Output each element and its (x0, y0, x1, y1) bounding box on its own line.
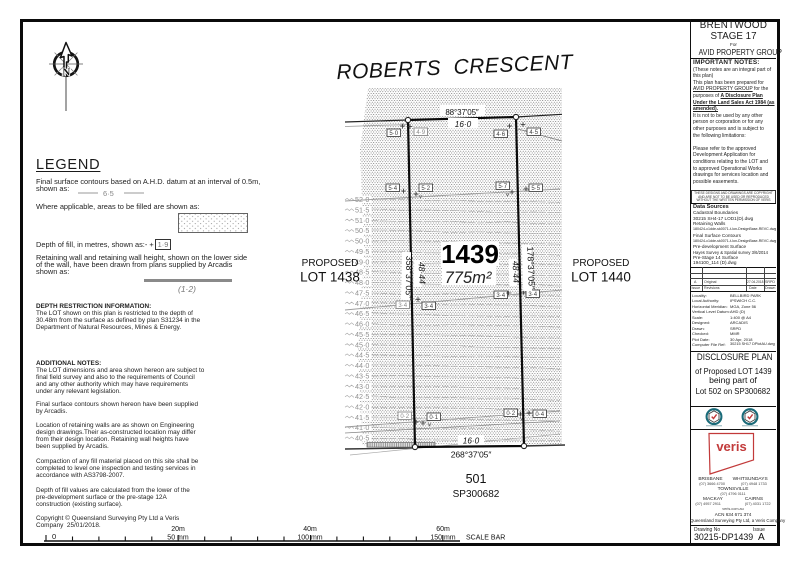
svg-text:47·5: 47·5 (355, 288, 369, 297)
svg-text:60m: 60m (436, 526, 450, 533)
svg-text:268°37'05″: 268°37'05″ (451, 450, 492, 460)
svg-text:SP300682: SP300682 (453, 489, 500, 500)
svg-text:5·2: 5·2 (421, 186, 430, 192)
svg-text:42·0: 42·0 (355, 403, 369, 412)
svg-text:50·0: 50·0 (355, 237, 369, 246)
svg-text:45·0: 45·0 (355, 340, 369, 349)
svg-text:46·5: 46·5 (355, 309, 369, 318)
svg-text:50·5: 50·5 (355, 226, 369, 235)
svg-text:49·5: 49·5 (355, 247, 369, 256)
svg-text:46·0: 46·0 (355, 320, 369, 329)
svg-text:41·5: 41·5 (355, 413, 369, 422)
svg-text:44·5: 44·5 (355, 351, 369, 360)
svg-text:178°37'05″: 178°37'05″ (525, 246, 536, 289)
svg-text:0·4: 0·4 (535, 412, 544, 418)
svg-text:51·0: 51·0 (355, 216, 369, 225)
svg-text:SCALE BAR: SCALE BAR (466, 535, 505, 542)
svg-text:0·2: 0·2 (506, 411, 515, 417)
svg-text:775m²: 775m² (445, 269, 492, 287)
svg-text:1439: 1439 (441, 239, 499, 269)
svg-text:88°37'05″: 88°37'05″ (445, 108, 479, 117)
svg-text:50 mm: 50 mm (167, 535, 189, 542)
svg-text:16·0: 16·0 (455, 120, 472, 129)
svg-text:4·6: 4·6 (496, 132, 505, 138)
svg-text:5·4: 5·4 (388, 186, 397, 192)
svg-text:48·44: 48·44 (511, 261, 522, 284)
svg-text:150 mm: 150 mm (430, 535, 455, 542)
svg-text:4·9: 4·9 (416, 130, 425, 136)
svg-text:100 mm: 100 mm (297, 535, 322, 542)
svg-text:501: 501 (466, 472, 487, 486)
svg-text:3·4: 3·4 (496, 293, 505, 299)
svg-text:44·0: 44·0 (355, 361, 369, 370)
svg-text:43·0: 43·0 (355, 382, 369, 391)
svg-text:48·44: 48·44 (417, 262, 428, 285)
svg-text:16·0: 16·0 (463, 437, 480, 446)
svg-text:45·5: 45·5 (355, 330, 369, 339)
svg-text:47·0: 47·0 (355, 299, 369, 308)
svg-text:ROBERTS CRESCENT: ROBERTS CRESCENT (336, 51, 575, 84)
svg-text:42·5: 42·5 (355, 392, 369, 401)
svg-text:0: 0 (52, 532, 56, 541)
svg-text:4·5: 4·5 (529, 130, 538, 136)
svg-text:PROPOSED: PROPOSED (573, 258, 630, 269)
svg-text:5·5: 5·5 (531, 186, 540, 192)
svg-text:LOT 1440: LOT 1440 (571, 270, 631, 285)
svg-text:3·4: 3·4 (398, 303, 407, 309)
svg-text:0·1: 0·1 (429, 415, 438, 421)
svg-text:41·0: 41·0 (355, 423, 369, 432)
svg-text:40·5: 40·5 (355, 434, 369, 443)
svg-text:veris: veris (716, 439, 746, 454)
svg-text:3·4: 3·4 (528, 292, 537, 298)
svg-text:6·5: 6·5 (103, 189, 114, 197)
svg-text:0·2: 0·2 (400, 414, 409, 420)
svg-text:40m: 40m (303, 526, 317, 533)
svg-text:5·0: 5·0 (389, 131, 398, 137)
svg-text:358°37'05″: 358°37'05″ (404, 256, 415, 299)
svg-text:PROPOSED: PROPOSED (302, 258, 359, 269)
svg-text:43·5: 43·5 (355, 371, 369, 380)
svg-text:51·5: 51·5 (355, 206, 369, 215)
svg-text:3·4: 3·4 (424, 304, 433, 310)
svg-text:LOT 1438: LOT 1438 (300, 270, 360, 285)
svg-text:5·7: 5·7 (498, 184, 507, 190)
